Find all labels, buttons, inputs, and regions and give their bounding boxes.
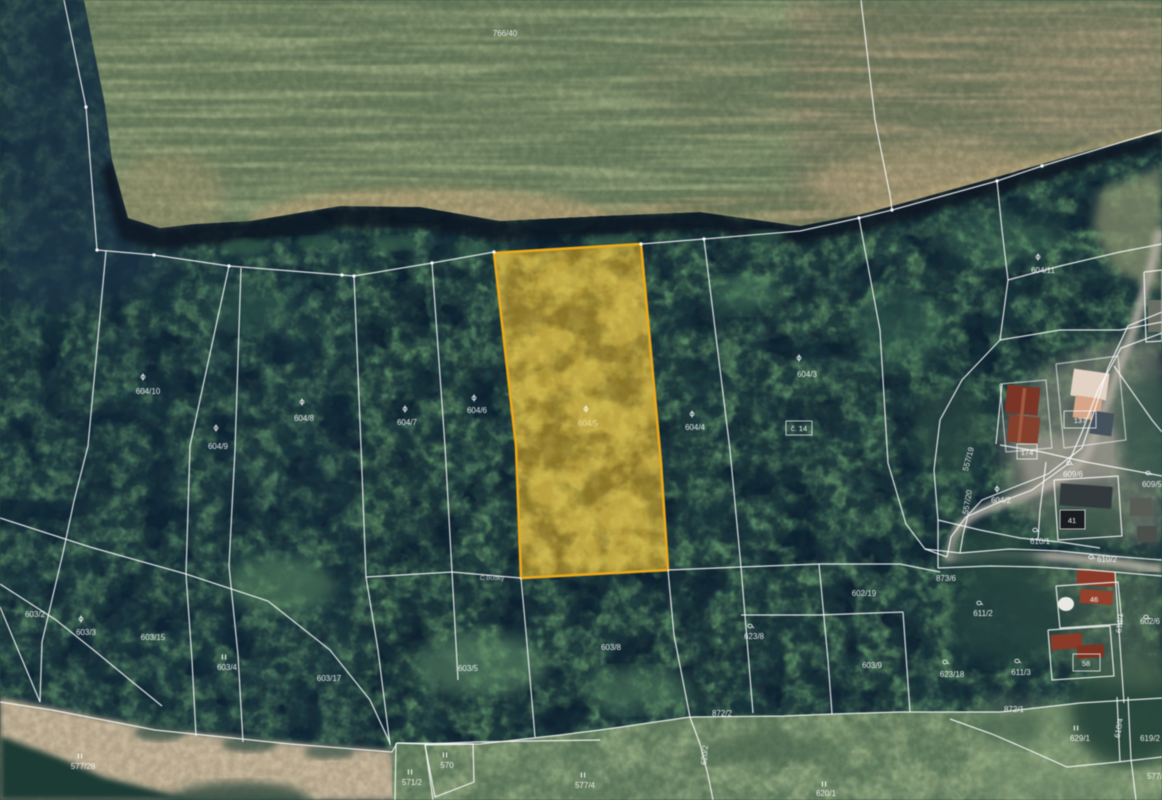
svg-text:611/2: 611/2 [973, 609, 993, 618]
svg-text:872/2: 872/2 [712, 709, 733, 718]
svg-text:č. 14: č. 14 [791, 424, 807, 433]
svg-text:611/3: 611/3 [1011, 668, 1031, 677]
svg-text:577/1: 577/1 [1147, 772, 1162, 781]
svg-text:603/8: 603/8 [601, 643, 622, 652]
svg-text:619/2: 619/2 [1140, 734, 1161, 743]
svg-text:137: 137 [1074, 416, 1087, 425]
svg-text:Č.Budky: Č.Budky [480, 573, 505, 582]
svg-text:620/2: 620/2 [699, 744, 710, 765]
svg-text:623/18: 623/18 [940, 670, 965, 679]
svg-text:604/4: 604/4 [685, 423, 706, 432]
svg-text:604/10: 604/10 [136, 387, 161, 396]
svg-text:872/1: 872/1 [1004, 705, 1025, 714]
svg-text:58: 58 [1082, 659, 1090, 668]
svg-text:46: 46 [1090, 595, 1098, 604]
svg-text:604/6: 604/6 [467, 406, 488, 415]
svg-text:602/6: 602/6 [1140, 617, 1161, 626]
svg-text:604/8: 604/8 [294, 414, 315, 423]
svg-text:603/9: 603/9 [862, 661, 883, 670]
svg-text:604/11: 604/11 [1031, 266, 1055, 275]
svg-text:629/1: 629/1 [1070, 734, 1091, 743]
svg-text:603/3: 603/3 [76, 628, 97, 637]
svg-text:603/15: 603/15 [141, 633, 166, 642]
svg-text:623/8: 623/8 [744, 632, 765, 641]
svg-text:603/4: 603/4 [217, 663, 238, 672]
svg-text:610/2: 610/2 [1097, 555, 1118, 564]
svg-text:873/6: 873/6 [936, 574, 957, 583]
svg-text:614/1: 614/1 [1114, 612, 1125, 633]
svg-text:610/1: 610/1 [1030, 537, 1051, 546]
svg-text:41: 41 [1068, 516, 1076, 525]
svg-text:570: 570 [440, 761, 454, 770]
svg-text:604/5: 604/5 [578, 419, 599, 428]
svg-text:604/9: 604/9 [208, 442, 229, 451]
svg-text:609/5: 609/5 [1142, 480, 1162, 489]
svg-text:174: 174 [1021, 448, 1034, 457]
svg-text:603/17: 603/17 [317, 674, 342, 683]
svg-text:604/3: 604/3 [797, 370, 818, 379]
svg-text:604/7: 604/7 [397, 418, 418, 427]
svg-text:603/2: 603/2 [25, 610, 46, 619]
svg-text:603/5: 603/5 [458, 664, 479, 673]
svg-text:609/6: 609/6 [1063, 470, 1084, 479]
svg-text:620/1: 620/1 [816, 789, 837, 798]
svg-text:604/2: 604/2 [991, 496, 1012, 505]
svg-text:602/19: 602/19 [852, 589, 877, 598]
svg-text:766/40: 766/40 [493, 29, 518, 38]
svg-text:577/28: 577/28 [71, 762, 96, 771]
svg-text:571/2: 571/2 [402, 778, 423, 787]
svg-text:577/4: 577/4 [575, 781, 596, 790]
